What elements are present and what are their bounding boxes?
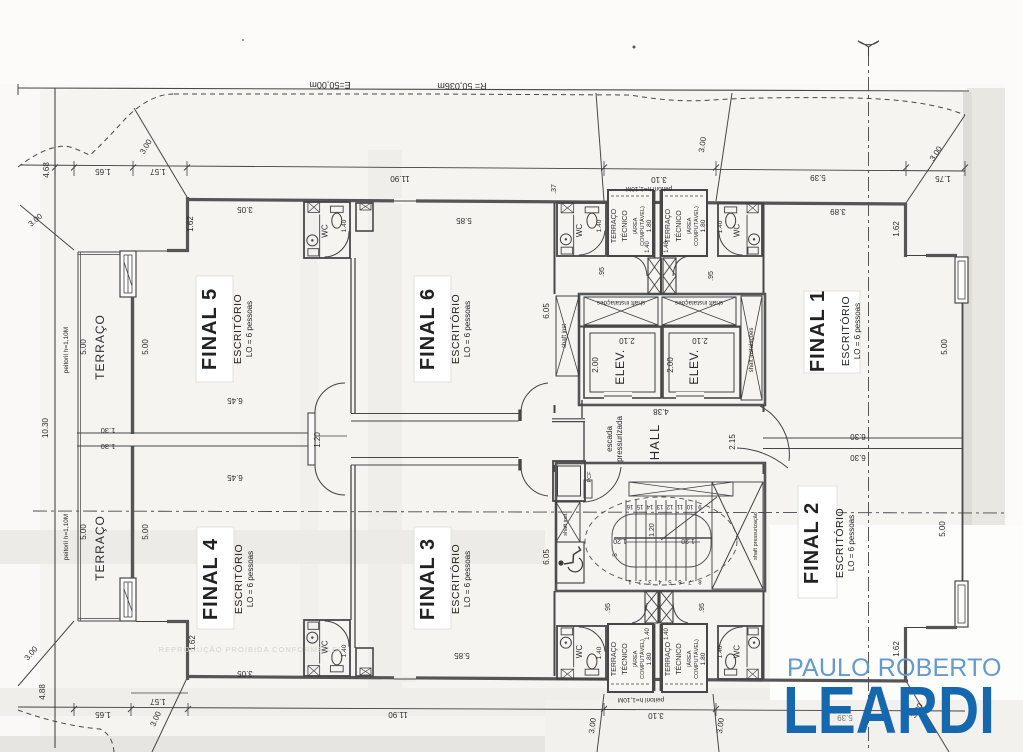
- svg-text:2.10: 2.10: [619, 336, 635, 345]
- svg-text:5.85: 5.85: [454, 651, 470, 660]
- svg-text:1.40: 1.40: [596, 219, 603, 232]
- svg-text:FINAL 2: FINAL 2: [801, 502, 823, 584]
- svg-text:4.88: 4.88: [38, 684, 47, 700]
- svg-text:COMPUTÁVEL): COMPUTÁVEL): [693, 206, 700, 246]
- svg-text:ESCRITÓRIO: ESCRITÓRIO: [833, 508, 846, 578]
- svg-text:1.80: 1.80: [700, 219, 707, 232]
- svg-text:1.65: 1.65: [95, 710, 111, 719]
- svg-text:FINAL 1: FINAL 1: [807, 290, 829, 372]
- svg-text:1.80: 1.80: [646, 652, 653, 665]
- svg-text:1.80: 1.80: [700, 652, 707, 665]
- svg-text:1.40: 1.40: [717, 220, 724, 233]
- svg-text:6.45: 6.45: [227, 396, 243, 405]
- svg-text:1.20: 1.20: [613, 537, 627, 544]
- svg-text:.95: .95: [699, 603, 706, 613]
- svg-text:4.68: 4.68: [42, 162, 51, 178]
- svg-text:LO = 6 pessoas: LO = 6 pessoas: [463, 301, 472, 357]
- svg-text:2.00: 2.00: [591, 357, 600, 373]
- svg-text:LO = 6 pessoas: LO = 6 pessoas: [246, 551, 255, 607]
- svg-text:TÉCNICO: TÉCNICO: [674, 210, 683, 242]
- svg-text:FINAL 3: FINAL 3: [417, 538, 439, 620]
- svg-text:LO = 6 pessoas: LO = 6 pessoas: [245, 301, 254, 357]
- svg-text:1.75: 1.75: [935, 174, 951, 183]
- svg-text:1.30: 1.30: [101, 426, 116, 435]
- svg-text:13: 13: [656, 503, 663, 509]
- svg-text:TERRAÇO: TERRAÇO: [611, 208, 618, 243]
- svg-text:1.40: 1.40: [596, 646, 603, 659]
- svg-text:LO = 6 pessoas: LO = 6 pessoas: [853, 303, 862, 359]
- svg-text:1.65: 1.65: [95, 167, 111, 176]
- svg-text:COMPUTÁVEL): COMPUTÁVEL): [639, 639, 646, 679]
- svg-text:TÉCNICO: TÉCNICO: [620, 210, 629, 242]
- svg-text:1.80: 1.80: [646, 219, 653, 232]
- svg-text:(ÁREA: (ÁREA: [686, 650, 693, 667]
- svg-text:TÉCNICO: TÉCNICO: [674, 643, 683, 675]
- svg-text:5.00: 5.00: [141, 339, 150, 355]
- svg-text:WC: WC: [575, 645, 584, 659]
- svg-text:14: 14: [646, 503, 653, 509]
- svg-text:6.05: 6.05: [542, 549, 551, 565]
- svg-text:.95: .95: [708, 271, 715, 281]
- svg-text:5.00: 5.00: [141, 524, 150, 540]
- svg-text:3.05: 3.05: [237, 669, 253, 678]
- svg-text:TÉCNICO: TÉCNICO: [620, 643, 629, 675]
- svg-text:11: 11: [676, 503, 683, 509]
- svg-text:PCF: PCF: [587, 471, 593, 483]
- svg-text:3.89: 3.89: [830, 207, 846, 216]
- svg-text:4.38: 4.38: [653, 407, 669, 416]
- svg-text:.95: .95: [605, 603, 612, 613]
- svg-text:1.40: 1.40: [664, 628, 670, 640]
- svg-text:2.15: 2.15: [728, 434, 737, 450]
- svg-text:2.00: 2.00: [666, 357, 675, 373]
- svg-text:.37: .37: [551, 184, 558, 194]
- svg-text:peitoril h=1,10M: peitoril h=1,10M: [618, 696, 664, 703]
- svg-text:5.00: 5.00: [79, 339, 88, 355]
- svg-text:1.40: 1.40: [645, 241, 651, 253]
- svg-text:LEARDI: LEARDI: [783, 673, 995, 748]
- svg-text:1.20: 1.20: [649, 523, 656, 537]
- svg-text:1.40: 1.40: [341, 644, 348, 657]
- svg-text:12: 12: [666, 503, 673, 509]
- svg-text:2.10: 2.10: [692, 336, 708, 345]
- svg-text:ELEV.: ELEV.: [687, 349, 701, 384]
- svg-text:COMPUTÁVEL): COMPUTÁVEL): [693, 639, 700, 679]
- svg-text:TERRAÇO: TERRAÇO: [665, 641, 672, 676]
- svg-text:5.00: 5.00: [79, 524, 88, 540]
- svg-text:TERRAÇO: TERRAÇO: [93, 314, 107, 380]
- svg-text:ESCRITÓRIO: ESCRITÓRIO: [449, 544, 462, 614]
- svg-text:3.10: 3.10: [648, 711, 664, 720]
- svg-text:shaft pressurização: shaft pressurização: [753, 512, 759, 560]
- svg-text:shaft instalações: shaft instalações: [674, 299, 723, 306]
- svg-text:ELEV.: ELEV.: [613, 349, 627, 384]
- svg-text:R= 50,036m: R= 50,036m: [437, 81, 486, 91]
- svg-text:shaft instalações: shaft instalações: [749, 328, 755, 373]
- svg-text:TERRAÇO: TERRAÇO: [93, 515, 107, 581]
- svg-text:6.30: 6.30: [850, 453, 866, 462]
- svg-text:ESCRITÓRIO: ESCRITÓRIO: [839, 296, 852, 366]
- svg-text:1.40: 1.40: [664, 241, 670, 253]
- svg-text:peitoril h=1,10M: peitoril h=1,10M: [626, 185, 672, 192]
- svg-text:E=50,00m: E=50,00m: [309, 80, 350, 90]
- svg-text:5.85: 5.85: [456, 216, 472, 225]
- svg-text:shaft inst: shaft inst: [562, 324, 568, 348]
- svg-text:6.45: 6.45: [227, 473, 243, 482]
- svg-text:1.30: 1.30: [101, 442, 116, 451]
- svg-text:5.00: 5.00: [938, 521, 947, 537]
- svg-text:6.05: 6.05: [542, 303, 551, 319]
- svg-text:shaft inst.: shaft inst.: [563, 512, 569, 536]
- svg-text:FINAL 6: FINAL 6: [417, 288, 439, 370]
- svg-text:ESCRITÓRIO: ESCRITÓRIO: [449, 294, 462, 364]
- svg-text:WC: WC: [320, 224, 329, 238]
- svg-text:LO = 6 pessoas: LO = 6 pessoas: [463, 551, 472, 607]
- svg-text:shaft instalações: shaft instalações: [596, 299, 645, 306]
- svg-text:FINAL 5: FINAL 5: [199, 288, 221, 370]
- svg-text:3.10: 3.10: [651, 175, 667, 184]
- svg-text:WC: WC: [733, 224, 742, 238]
- svg-text:5.00: 5.00: [940, 339, 949, 355]
- svg-text:3.05: 3.05: [237, 205, 253, 214]
- svg-text:1.62: 1.62: [892, 221, 901, 237]
- svg-text:6.30: 6.30: [850, 432, 866, 441]
- svg-text:escada: escada: [605, 426, 614, 452]
- svg-text:REPRODUÇÃO PROIBIDA CONFORM: REPRODUÇÃO PROIBIDA CONFORME LEI: [159, 645, 341, 654]
- svg-text:10.30: 10.30: [41, 417, 50, 438]
- svg-text:1.62: 1.62: [186, 216, 195, 232]
- svg-text:(ÁREA: (ÁREA: [632, 217, 639, 234]
- svg-text:16: 16: [626, 503, 633, 509]
- svg-text:1.20: 1.20: [313, 432, 322, 448]
- svg-text:FINAL 4: FINAL 4: [200, 538, 222, 620]
- svg-text:ESCRITÓRIO: ESCRITÓRIO: [231, 294, 244, 364]
- svg-text:WC: WC: [575, 224, 584, 238]
- svg-text:peitoril h=1,10M: peitoril h=1,10M: [63, 514, 70, 560]
- svg-text:pressurizada: pressurizada: [615, 416, 624, 462]
- svg-text:11.90: 11.90: [388, 710, 408, 719]
- svg-text:LO = 6 pessoas: LO = 6 pessoas: [847, 515, 856, 571]
- svg-text:11.90: 11.90: [390, 174, 410, 183]
- svg-text:1.40: 1.40: [717, 645, 724, 658]
- svg-text:(ÁREA: (ÁREA: [632, 650, 639, 667]
- svg-text:HALL: HALL: [647, 424, 662, 461]
- svg-text:TERRAÇO: TERRAÇO: [665, 208, 672, 243]
- svg-text:.95: .95: [599, 267, 606, 277]
- svg-text:peitoril h=1,10M: peitoril h=1,10M: [63, 327, 70, 373]
- svg-text:1.40: 1.40: [645, 628, 651, 640]
- svg-text:1.40: 1.40: [341, 219, 348, 232]
- svg-text:10: 10: [686, 503, 693, 509]
- svg-text:COMPUTÁVEL): COMPUTÁVEL): [639, 206, 646, 246]
- svg-text:(ÁREA: (ÁREA: [686, 217, 693, 234]
- svg-text:WC: WC: [733, 645, 742, 659]
- svg-text:ESCRITÓRIO: ESCRITÓRIO: [232, 544, 245, 614]
- svg-text:TERRAÇO: TERRAÇO: [611, 641, 618, 676]
- svg-text:1.57: 1.57: [150, 697, 166, 706]
- svg-text:5.39: 5.39: [810, 173, 826, 182]
- svg-text:1.57: 1.57: [150, 167, 166, 176]
- svg-text:1.20: 1.20: [681, 537, 695, 544]
- svg-text:15: 15: [636, 503, 643, 509]
